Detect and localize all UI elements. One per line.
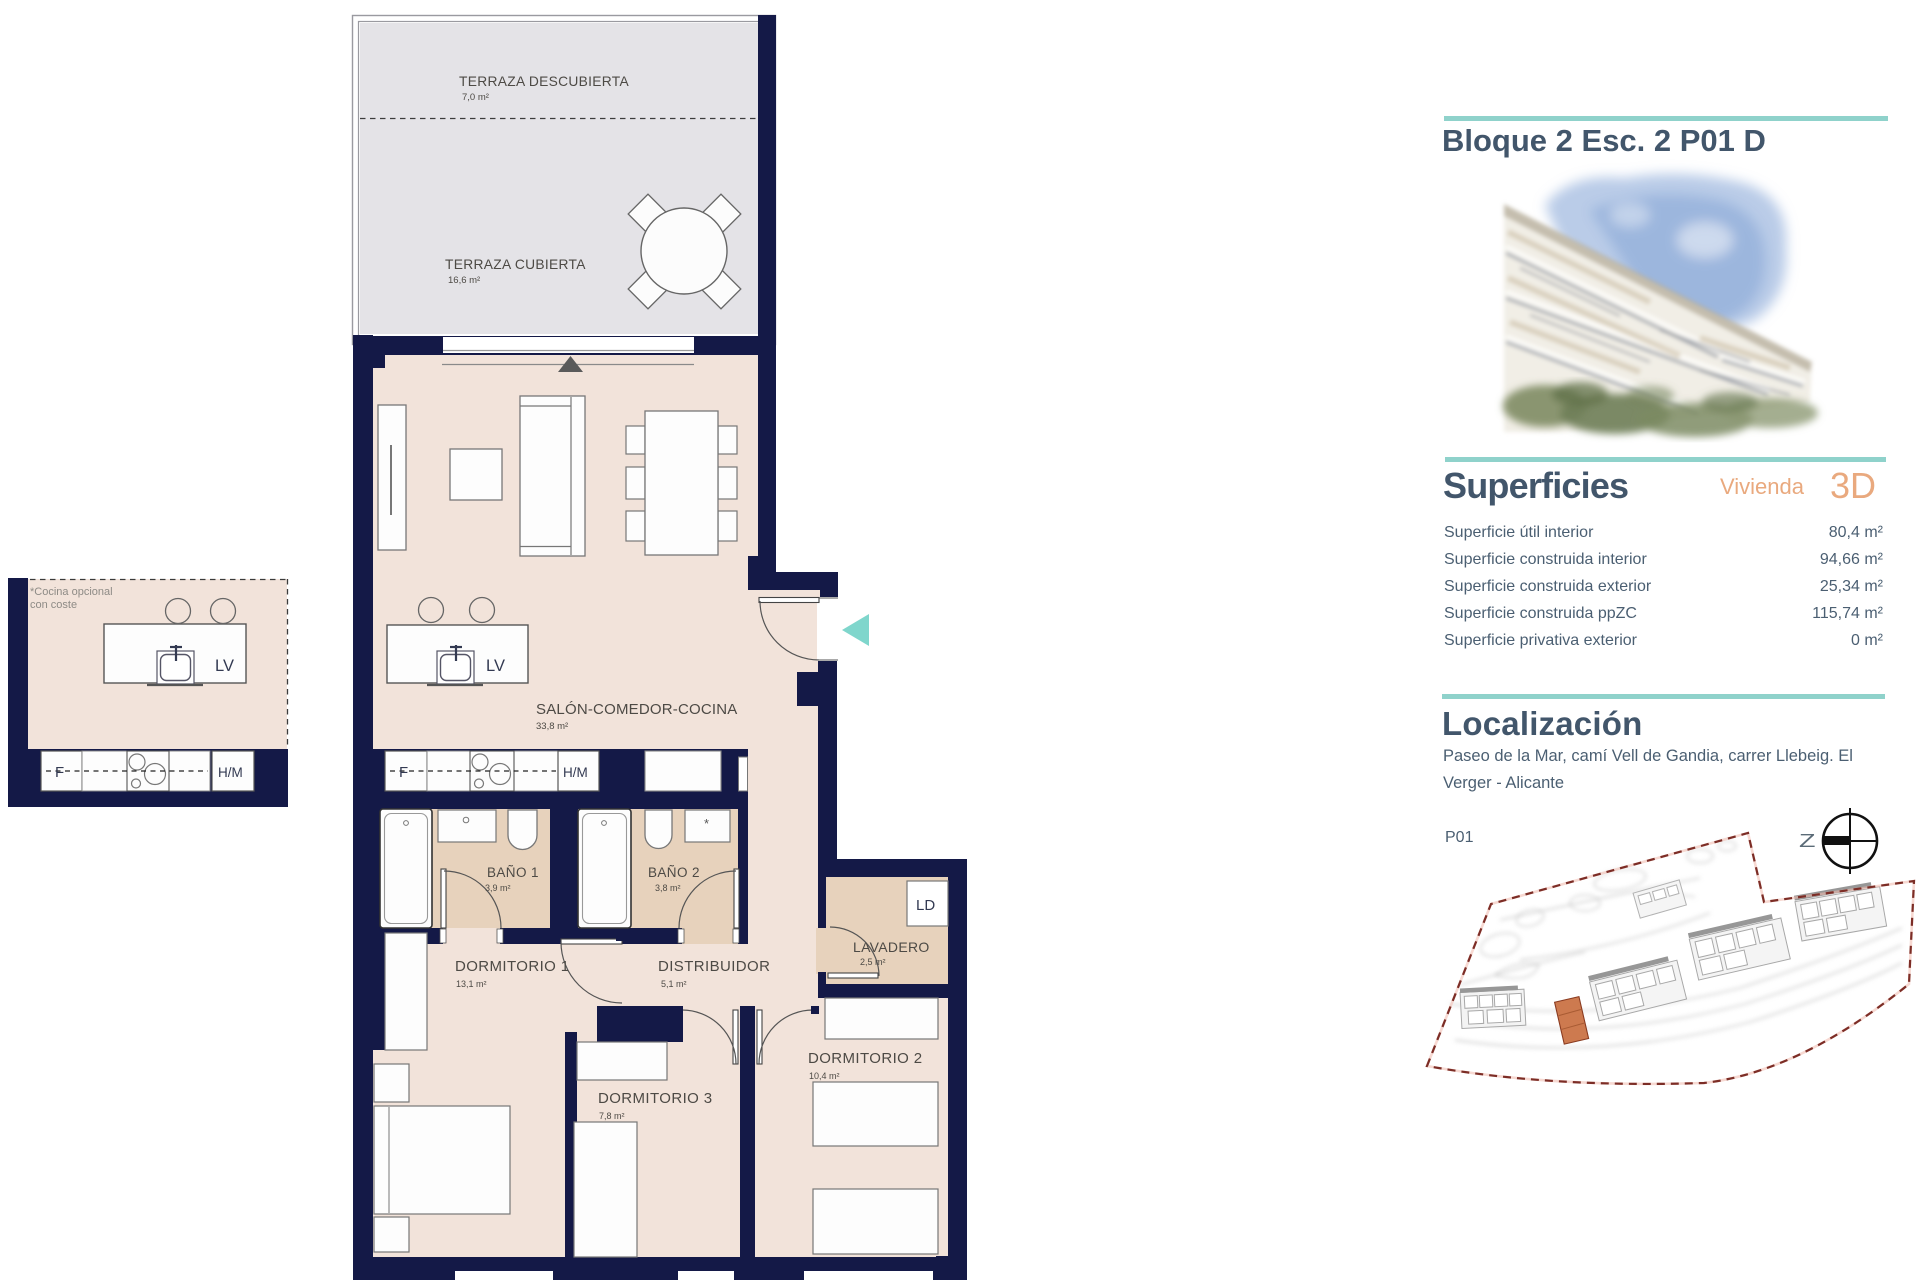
svg-text:Superficie construida exterior: Superficie construida exterior <box>1444 578 1652 595</box>
svg-text:3,8 m²: 3,8 m² <box>655 883 681 893</box>
svg-text:BAÑO 2: BAÑO 2 <box>648 865 700 880</box>
svg-text:80,4 m²: 80,4 m² <box>1829 524 1884 541</box>
svg-text:DORMITORIO 2: DORMITORIO 2 <box>808 1050 923 1067</box>
svg-text:Vivienda: Vivienda <box>1720 474 1805 499</box>
svg-text:16,6 m²: 16,6 m² <box>448 275 480 286</box>
svg-text:7,0 m²: 7,0 m² <box>462 92 489 103</box>
svg-text:Superficie útil interior: Superficie útil interior <box>1444 524 1594 541</box>
svg-text:3D: 3D <box>1830 465 1876 506</box>
svg-text:Localización: Localización <box>1442 705 1642 742</box>
svg-text:94,66 m²: 94,66 m² <box>1820 551 1884 568</box>
svg-text:Superficie construida ppZC: Superficie construida ppZC <box>1444 605 1637 622</box>
svg-text:Superficies: Superficies <box>1443 465 1628 506</box>
svg-text:25,34 m²: 25,34 m² <box>1820 578 1884 595</box>
svg-text:LAVADERO: LAVADERO <box>853 939 930 955</box>
svg-text:H/M: H/M <box>218 765 243 780</box>
svg-text:3,9 m²: 3,9 m² <box>485 883 511 893</box>
svg-text:13,1 m²: 13,1 m² <box>456 979 487 989</box>
svg-text:DISTRIBUIDOR: DISTRIBUIDOR <box>658 958 770 975</box>
svg-text:BAÑO 1: BAÑO 1 <box>487 865 539 880</box>
svg-text:5,1 m²: 5,1 m² <box>661 979 687 989</box>
svg-text:115,74 m²: 115,74 m² <box>1812 605 1884 622</box>
svg-text:Verger - Alicante: Verger - Alicante <box>1443 774 1564 792</box>
svg-text:Superficie privativa exterior: Superficie privativa exterior <box>1444 632 1638 649</box>
svg-text:TERRAZA DESCUBIERTA: TERRAZA DESCUBIERTA <box>459 74 630 89</box>
svg-text:*: * <box>704 816 709 831</box>
svg-text:P01: P01 <box>1445 829 1474 846</box>
svg-text:0 m²: 0 m² <box>1851 632 1884 649</box>
svg-text:TERRAZA CUBIERTA: TERRAZA CUBIERTA <box>445 257 586 272</box>
svg-text:H/M: H/M <box>563 765 588 780</box>
svg-text:*Cocina opcional: *Cocina opcional <box>30 586 113 598</box>
svg-text:Z: Z <box>1799 831 1815 851</box>
svg-text:F: F <box>55 764 64 781</box>
svg-text:2,5 m²: 2,5 m² <box>860 957 886 967</box>
svg-text:Bloque 2 Esc. 2 P01 D: Bloque 2 Esc. 2 P01 D <box>1442 123 1766 158</box>
svg-text:F: F <box>399 764 408 781</box>
svg-text:33,8 m²: 33,8 m² <box>536 721 568 732</box>
svg-text:Paseo de la Mar, camí Vell de: Paseo de la Mar, camí Vell de Gandia, ca… <box>1443 747 1853 765</box>
svg-text:LV: LV <box>215 657 234 675</box>
svg-text:DORMITORIO 1: DORMITORIO 1 <box>455 958 570 975</box>
svg-text:LD: LD <box>916 897 935 914</box>
svg-text:DORMITORIO 3: DORMITORIO 3 <box>598 1090 713 1107</box>
svg-text:Superficie construida interior: Superficie construida interior <box>1444 551 1647 568</box>
svg-text:LV: LV <box>486 657 505 675</box>
svg-text:con coste: con coste <box>30 599 77 611</box>
svg-text:10,4 m²: 10,4 m² <box>809 1071 840 1081</box>
svg-text:7,8 m²: 7,8 m² <box>599 1111 625 1121</box>
svg-text:SALÓN-COMEDOR-COCINA: SALÓN-COMEDOR-COCINA <box>536 701 738 718</box>
